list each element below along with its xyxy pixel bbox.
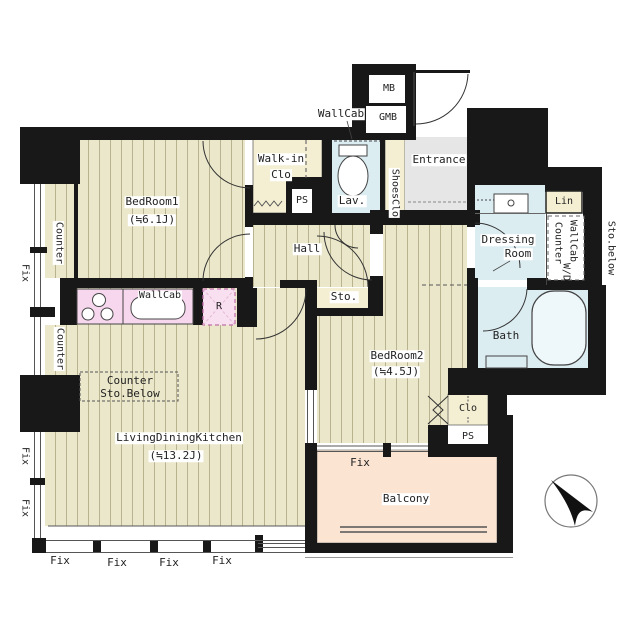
bedroom1-label: BedRoom1 [125,196,180,208]
walk-in-closet-label2: Clo [270,169,292,181]
counter-storage-label: Counter [106,375,154,387]
entrance-floor [405,137,467,210]
linen-label: Lin [554,197,574,208]
fix-bottom-2-label: Fix [106,557,128,569]
bedroom2-size-label: (≒4.5J) [372,366,420,378]
entrance-label: Entrance [412,154,467,166]
hall-label: Hall [293,243,322,255]
floor-plan: BedRoom1 (≒6.1J) Counter Fix Counter Fix… [0,0,640,640]
bedroom2-label: BedRoom2 [370,350,425,362]
toilet-icon [338,156,368,196]
bedroom1-size-label: (≒6.1J) [128,214,176,226]
hall-floor [253,225,370,287]
bath-label: Bath [492,330,521,342]
lav-wallcab-label: WallCab [317,108,365,120]
dressing-room-label: Dressing [481,234,536,246]
ldk-size-label: (≒13.2J) [149,450,204,462]
door-arc-entrance [416,74,468,124]
shoes-closet-label: ShoesClo [389,168,400,218]
bedroom1-floor [78,140,245,278]
fix-bedroom2-label: Fix [349,457,371,469]
compass-icon [545,475,597,527]
wd-wallcab-label: WallCab [567,219,578,263]
storage-label: Sto. [330,291,359,303]
kitchen-wallcab-label: WallCab [138,291,182,302]
meter-box-label: MB [382,84,396,95]
floor-plan-graphic [0,0,640,640]
pipe-space-upper-label: PS [295,196,309,207]
ldk-floor-ext [45,432,76,526]
counter-lower-label: Counter [54,327,65,371]
balcony-label: Balcony [382,493,430,505]
walk-in-closet-label: Walk-in [257,153,305,165]
toilet-tank-icon [339,145,367,156]
fix-left-bottom-label: Fix [19,498,30,518]
faucet-icon [508,200,514,206]
pipe-space-lower-label: PS [461,432,475,443]
fix-left-mid-label: Fix [19,446,30,466]
wd-label: W/D [560,262,571,282]
closet2-label: Clo [458,404,478,415]
gas-meter-box-label: GMB [378,113,398,124]
counter-upper-label: Counter [53,221,64,265]
refrigerator-label: R [215,302,223,313]
counter-storage-label2: Sto.Below [99,388,161,400]
fix-left-top-label: Fix [19,263,30,283]
fix-bottom-1-label: Fix [49,555,71,567]
bedroom2-floor-ext [317,316,383,443]
bathtub-icon [532,291,586,365]
fix-bottom-3-label: Fix [158,557,180,569]
storage-below-right-label: Sto.below [605,220,616,276]
dressing-room-label2: Room [504,248,533,260]
fix-bottom-4-label: Fix [211,555,233,567]
wd-counter-label: Counter [552,221,563,265]
lavatory-label: Lav. [338,195,367,207]
ldk-label: LivingDiningKitchen [115,432,243,444]
